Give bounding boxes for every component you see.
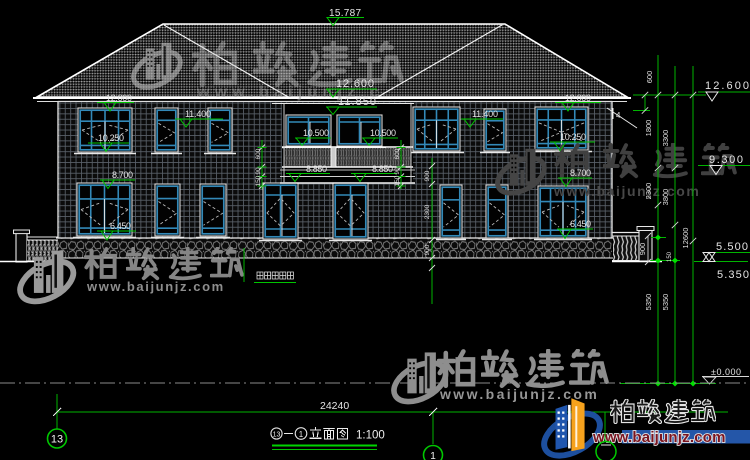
svg-text:90: 90 bbox=[394, 167, 401, 175]
svg-text:11.850: 11.850 bbox=[338, 96, 376, 108]
svg-text:150: 150 bbox=[394, 175, 401, 186]
svg-text:24240: 24240 bbox=[320, 400, 349, 412]
svg-text:150: 150 bbox=[255, 175, 262, 186]
svg-text:600: 600 bbox=[394, 148, 401, 159]
svg-text:www.baijunjz.com: www.baijunjz.com bbox=[86, 279, 225, 294]
svg-text:150: 150 bbox=[667, 251, 673, 262]
svg-text:4: 4 bbox=[616, 111, 621, 120]
svg-text:12.600: 12.600 bbox=[705, 80, 749, 92]
svg-text:2300: 2300 bbox=[424, 204, 431, 219]
svg-text:www.baijunjz.com: www.baijunjz.com bbox=[439, 386, 599, 402]
svg-text:12600: 12600 bbox=[681, 228, 690, 249]
svg-text:10.250: 10.250 bbox=[560, 132, 586, 142]
svg-text:8.700: 8.700 bbox=[112, 170, 133, 180]
svg-text:3300: 3300 bbox=[661, 130, 670, 147]
svg-text:5.350: 5.350 bbox=[717, 269, 749, 281]
svg-text:13: 13 bbox=[273, 432, 281, 439]
svg-text:5350: 5350 bbox=[644, 294, 653, 311]
svg-text:900: 900 bbox=[424, 244, 431, 255]
svg-text:6.450: 6.450 bbox=[570, 219, 591, 229]
svg-text:8.700: 8.700 bbox=[570, 168, 591, 178]
svg-text:3800: 3800 bbox=[661, 189, 670, 206]
svg-text:600: 600 bbox=[645, 71, 654, 84]
svg-text:6.450: 6.450 bbox=[110, 221, 131, 231]
svg-text:900: 900 bbox=[638, 243, 647, 256]
svg-text:1: 1 bbox=[299, 430, 304, 439]
svg-text:1: 1 bbox=[430, 451, 436, 460]
svg-text:900: 900 bbox=[424, 170, 431, 181]
svg-text:9.300: 9.300 bbox=[709, 154, 743, 166]
svg-text:12.000: 12.000 bbox=[565, 93, 591, 103]
svg-text:12.600: 12.600 bbox=[336, 78, 374, 90]
svg-text:10.500: 10.500 bbox=[370, 128, 396, 138]
svg-text:5.500: 5.500 bbox=[716, 241, 748, 253]
svg-text:±0.000: ±0.000 bbox=[711, 367, 741, 377]
svg-text:12.000: 12.000 bbox=[106, 93, 132, 103]
svg-text:600: 600 bbox=[255, 148, 262, 159]
svg-text:8.850: 8.850 bbox=[372, 164, 393, 174]
svg-text:11.400: 11.400 bbox=[472, 109, 498, 119]
svg-text:5350: 5350 bbox=[661, 294, 670, 311]
svg-text:90: 90 bbox=[255, 167, 262, 175]
svg-text:13: 13 bbox=[51, 434, 63, 446]
svg-text:1800: 1800 bbox=[644, 120, 653, 137]
svg-text:10.250: 10.250 bbox=[98, 133, 124, 143]
svg-text:10.500: 10.500 bbox=[303, 128, 329, 138]
svg-text:2300: 2300 bbox=[644, 183, 653, 200]
svg-text:11.400: 11.400 bbox=[185, 109, 211, 119]
svg-text:8.850: 8.850 bbox=[306, 164, 327, 174]
svg-text:1:100: 1:100 bbox=[356, 430, 385, 442]
svg-text:www.baijunjz.com: www.baijunjz.com bbox=[553, 183, 700, 199]
